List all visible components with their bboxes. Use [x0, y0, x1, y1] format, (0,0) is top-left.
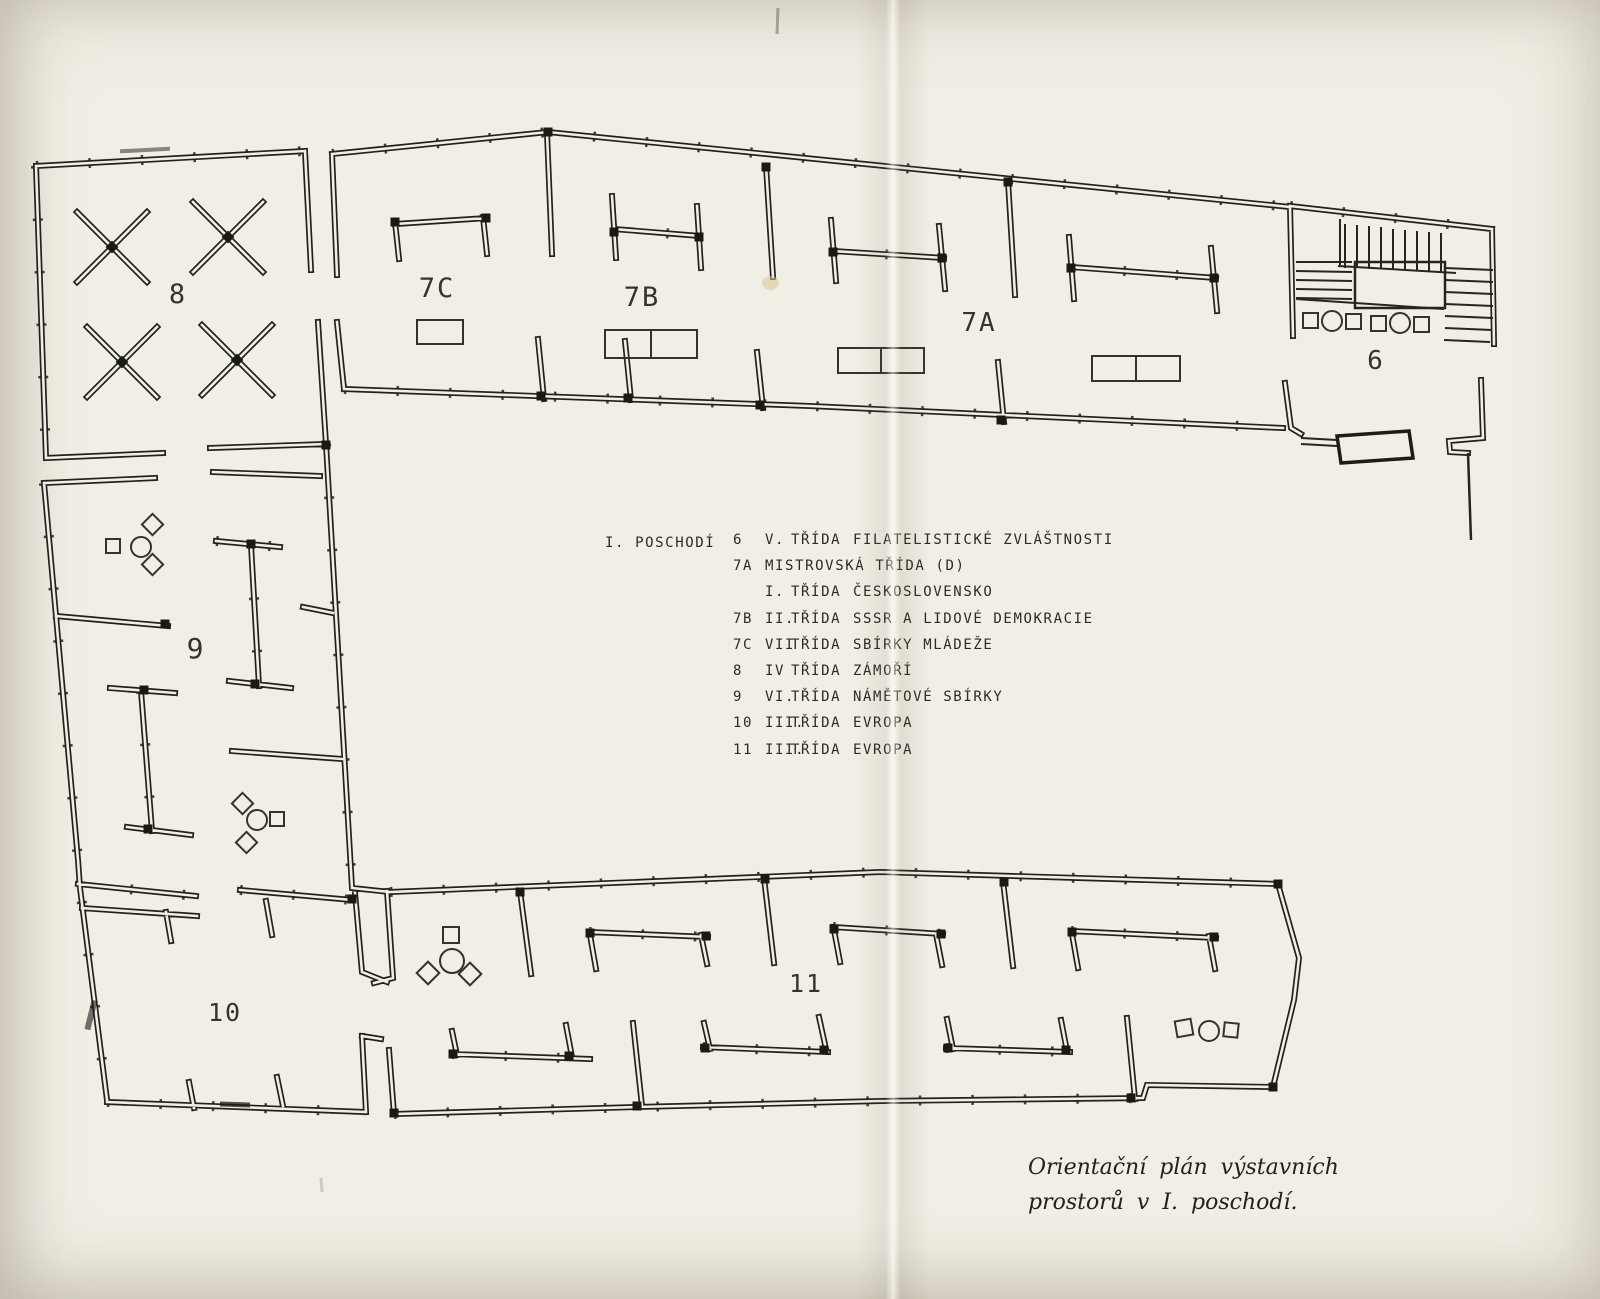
entry-desk [1337, 431, 1413, 463]
stair-treads [1296, 219, 1493, 342]
room-label-10: 10 [208, 998, 242, 1027]
legend-description: FILATELISTICKÉ ZVLÁŠTNOSTI [853, 532, 1114, 548]
room-label-8: 8 [169, 279, 187, 310]
chair [417, 962, 440, 985]
legend-description: NÁMĚTOVÉ SBÍRKY [853, 689, 1003, 705]
chair [1414, 317, 1429, 332]
chair [1371, 316, 1386, 331]
chair [232, 793, 253, 814]
outer-wall-tail [1468, 453, 1471, 540]
chair [142, 514, 163, 535]
legend-trida: TŘÍDA [791, 532, 845, 548]
chair [1223, 1022, 1238, 1037]
legend-description: ČESKOSLOVENSKO [853, 584, 993, 600]
legend-row: 7B II. TŘÍDA SSSR A LIDOVÉ DEMOKRACIE [733, 611, 1114, 637]
legend-class-roman: IV [765, 663, 791, 679]
legend-class-roman: III. [765, 742, 791, 758]
legend-trida: TŘÍDA [791, 715, 845, 731]
legend-room-number: 9 [733, 689, 765, 705]
legend-row: I. TŘÍDA ČESKOSLOVENSKO [733, 584, 1114, 610]
legend-room-number: 7B [733, 611, 765, 627]
caption-line-2: prostorů v I. poschodí. [1028, 1185, 1368, 1220]
legend-row: 9 VI. TŘÍDA NÁMĚTOVÉ SBÍRKY [733, 689, 1114, 715]
caption-line-1: Orientační plán výstavních [1028, 1150, 1368, 1185]
hatch-mark [220, 1101, 250, 1107]
round-table [131, 537, 151, 557]
legend-room-number: 7C [733, 637, 765, 653]
round-table [1390, 313, 1410, 333]
chair [443, 927, 459, 943]
legend-description: ZÁMOŘÍ [853, 663, 913, 679]
staircase [1296, 219, 1493, 342]
legend-row: 10 III. TŘÍDA EVROPA [733, 715, 1114, 741]
chair [106, 539, 120, 553]
legend-description: EVROPA [853, 715, 913, 731]
legend-room-number: 7A [733, 558, 765, 574]
legend-trida: TŘÍDA [791, 611, 845, 627]
round-table [247, 810, 267, 830]
legend-row: 7C VII TŘÍDA SBÍRKY MLÁDEŽE [733, 637, 1114, 663]
chair [236, 832, 257, 853]
chair [1175, 1019, 1194, 1038]
legend-class-roman: V. [765, 532, 791, 548]
legend-class-roman: III. [765, 715, 791, 731]
legend-trida: TŘÍDA [791, 584, 845, 600]
entry-vestibule [1301, 431, 1471, 540]
chair [1303, 313, 1318, 328]
chair [270, 812, 284, 826]
room-label-9: 9 [187, 632, 206, 665]
room-label-7b: 7B [624, 282, 661, 313]
room-label-7a: 7A [961, 308, 996, 338]
paper-stain [762, 276, 779, 290]
floor-heading: I. POSCHODÍ [605, 535, 715, 551]
legend-class-roman: II. [765, 611, 791, 627]
table [417, 320, 463, 344]
legend-class-roman: VII [765, 637, 791, 653]
legend-description: EVROPA [853, 742, 913, 758]
legend-class-roman: VI. [765, 689, 791, 705]
scanned-floor-plan-page: 8 7C 7B 7A 6 9 10 11 I. POSCHODÍ 6 V. TŘ… [0, 0, 1600, 1299]
legend-trida: TŘÍDA [791, 742, 845, 758]
figure-caption: Orientační plán výstavních prostorů v I.… [1028, 1150, 1368, 1220]
legend-row: 6 V. TŘÍDA FILATELISTICKÉ ZVLÁŠTNOSTI [733, 532, 1114, 558]
round-table [1322, 311, 1342, 331]
legend-description: SSSR A LIDOVÉ DEMOKRACIE [853, 611, 1094, 627]
round-table [440, 949, 464, 973]
legend-trida: TŘÍDA [791, 689, 845, 705]
legend-room-number: 10 [733, 715, 765, 731]
round-table [1199, 1021, 1219, 1041]
room-label-7c: 7C [419, 273, 456, 304]
legend-room-number: 6 [733, 532, 765, 548]
legend-description: SBÍRKY MLÁDEŽE [853, 637, 993, 653]
legend-rows: 6 V. TŘÍDA FILATELISTICKÉ ZVLÁŠTNOSTI 7A… [733, 532, 1114, 768]
room-label-6: 6 [1367, 346, 1385, 376]
legend-row: 8 IV TŘÍDA ZÁMOŘÍ [733, 663, 1114, 689]
legend-class-roman: MISTROVSKÁ TŘÍDA (D) [765, 558, 791, 574]
room-label-11: 11 [789, 969, 823, 998]
legend-room-number: 8 [733, 663, 765, 679]
legend-row: 11 III. TŘÍDA EVROPA [733, 742, 1114, 768]
legend-row: 7A MISTROVSKÁ TŘÍDA (D) [733, 558, 1114, 584]
legend-trida: TŘÍDA [791, 663, 845, 679]
chair [1346, 314, 1361, 329]
legend-room-number: 11 [733, 742, 765, 758]
legend-class-roman: I. [765, 584, 791, 600]
entry-corridor-lines [1301, 438, 1337, 446]
legend-trida: TŘÍDA [791, 637, 845, 653]
hatch-mark [120, 147, 170, 154]
